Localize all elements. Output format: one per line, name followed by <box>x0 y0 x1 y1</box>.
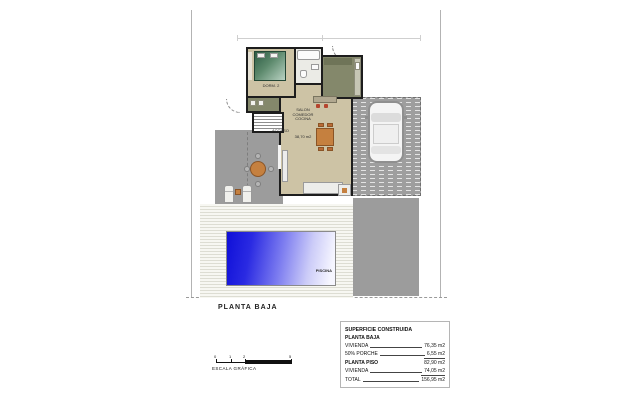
parcel-boundary-right <box>440 10 441 298</box>
row-value: 76,35 m2 <box>424 342 445 350</box>
car-rear-window <box>371 146 401 154</box>
bedroom-label: DORM. 2 <box>252 84 290 89</box>
scale-tick <box>216 359 217 363</box>
table-row-total: TOTAL 156,95 m2 <box>345 375 445 384</box>
toilet <box>300 70 307 78</box>
tv-bench <box>282 150 288 182</box>
table-row: 50% PORCHE 6,55 m2 <box>345 350 445 358</box>
fixture <box>250 100 256 106</box>
dimension-line <box>237 38 420 39</box>
dining-table <box>316 128 334 146</box>
dining-chair <box>327 147 333 151</box>
bar-stool <box>316 104 320 108</box>
table-row-subtotal: PLANTA PISO 82,90 m2 <box>345 358 445 367</box>
table-row: VIVIENDA 76,35 m2 <box>345 342 445 350</box>
wardrobe <box>248 52 252 80</box>
terrace-chair <box>255 153 261 159</box>
bathtub <box>297 50 320 60</box>
leader-line <box>363 381 420 382</box>
pillow <box>270 53 278 58</box>
armchair-cushion <box>342 188 347 193</box>
kitchen-sink <box>355 62 360 70</box>
living-room-label: SALON COMEDOR COCINA <box>290 108 316 122</box>
plan-title: PLANTA BAJA <box>218 304 278 311</box>
bar-stool <box>324 104 328 108</box>
terrace-chair <box>268 166 274 172</box>
subtotal-value: 82,90 m2 <box>424 358 445 367</box>
table-row: VIVIENDA 74,05 m2 <box>345 367 445 375</box>
lounger-side-table <box>235 189 241 195</box>
dimension-tick <box>237 35 238 41</box>
access-label: ACCESO <box>272 129 289 134</box>
terrace-chair <box>255 181 261 187</box>
sun-lounger <box>242 185 252 203</box>
row-value: 6,55 m2 <box>427 350 445 358</box>
total-label: TOTAL <box>345 376 361 384</box>
terrace-chair <box>244 166 250 172</box>
pool-label: PISCINA <box>300 269 332 274</box>
leader-line <box>370 372 422 373</box>
dining-chair <box>318 147 324 151</box>
living-area-label: 38,70 m2 <box>290 135 316 140</box>
swimming-pool <box>226 231 336 286</box>
dimension-tick <box>322 35 323 41</box>
floor-plan-page: PISCINA DORM. 2 ACCESO SALON COMEDOR COC… <box>0 0 630 401</box>
window <box>278 145 281 169</box>
parcel-boundary-left <box>191 10 192 298</box>
terrace-table <box>250 161 266 177</box>
leader-line <box>370 347 422 348</box>
car-mirror-right <box>403 116 407 119</box>
dining-chair <box>327 123 333 127</box>
washbasin <box>311 64 319 70</box>
scale-bar-segment <box>245 360 292 364</box>
car-windshield <box>371 113 401 122</box>
section-planta-piso: PLANTA PISO <box>345 359 378 367</box>
kitchen-island <box>313 96 337 103</box>
leader-line <box>380 355 425 356</box>
dining-chair <box>318 123 324 127</box>
pillow <box>257 53 265 58</box>
row-label: VIVIENDA <box>345 367 368 375</box>
kitchen-counter <box>324 58 352 65</box>
sun-lounger <box>224 185 234 203</box>
dimension-tick <box>420 35 421 41</box>
scale-caption: ESCALA GRÁFICA <box>212 366 256 371</box>
sofa <box>303 182 343 194</box>
surface-summary-table: SUPERFICIE CONSTRUIDA PLANTA BAJA VIVIEN… <box>340 321 450 388</box>
living-label-line3: COCINA <box>290 117 316 122</box>
car-roof <box>373 124 399 144</box>
row-value: 74,05 m2 <box>424 367 445 375</box>
fixture <box>258 100 264 106</box>
section-planta-baja: PLANTA BAJA <box>345 334 445 342</box>
paved-patio <box>353 198 419 296</box>
table-title: SUPERFICIE CONSTRUIDA <box>345 326 445 334</box>
scale-tick <box>231 359 232 363</box>
row-label: 50% PORCHE <box>345 350 378 358</box>
row-label: VIVIENDA <box>345 342 368 350</box>
car-mirror-left <box>365 116 369 119</box>
total-value: 156,95 m2 <box>421 375 445 384</box>
